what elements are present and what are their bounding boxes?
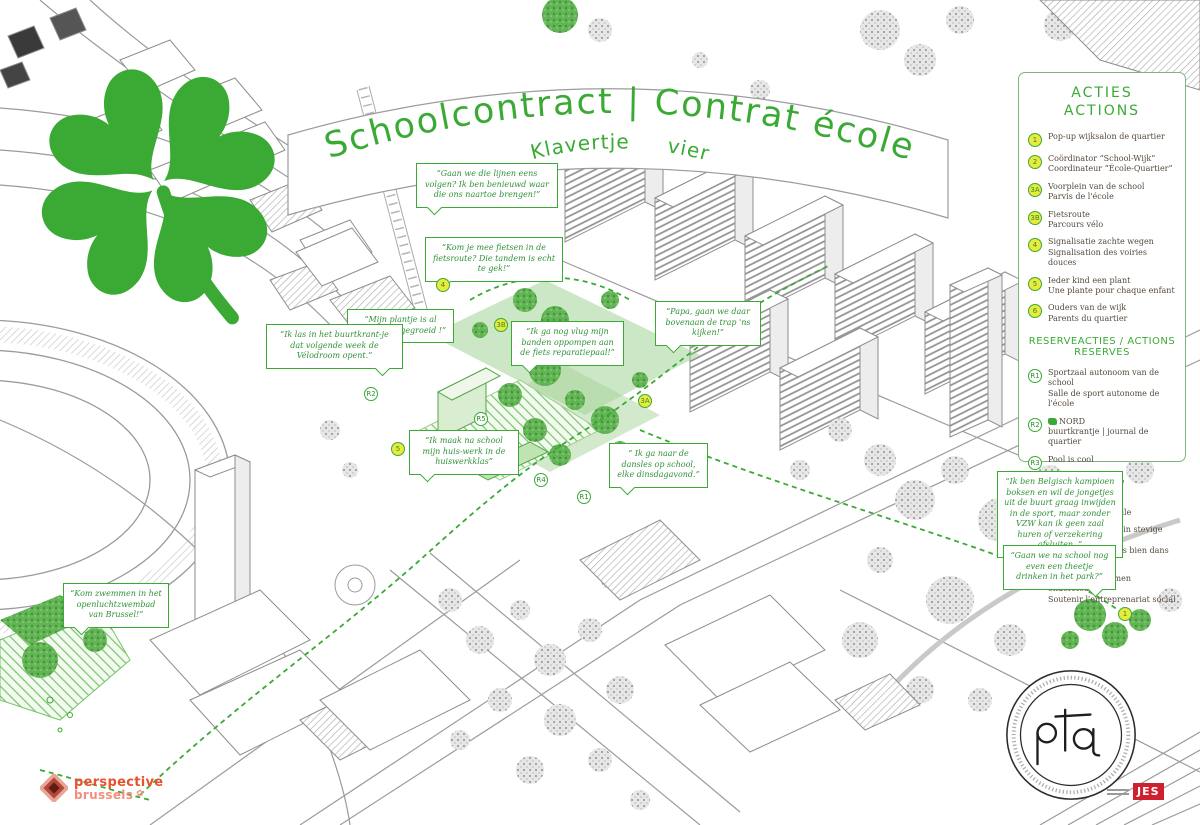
- four-leaf-clover-logo: [6, 32, 320, 350]
- map-badge-3b: 3B: [494, 318, 508, 332]
- legend-reservations-title: RESERVEACTIES / ACTIONS RESERVES: [1028, 336, 1176, 358]
- action-badge: 3A: [1028, 183, 1042, 197]
- speech-bubble-trap: “Papa, gaan we daar bovenaan de trap 'ns…: [655, 301, 761, 346]
- perspective-diamond-icon: [40, 774, 68, 802]
- action-badge: 2: [1028, 155, 1042, 169]
- reservation-badge: R1: [1028, 369, 1042, 383]
- jes-wordmark: JES: [1133, 783, 1164, 800]
- action-badge: 4: [1028, 238, 1042, 252]
- map-badge-r5: R5: [474, 412, 488, 426]
- tall-tower: [950, 268, 1002, 437]
- action-badge: 3B: [1028, 211, 1042, 225]
- action-badge: 5: [1028, 277, 1042, 291]
- jes-logo: JES: [1107, 783, 1164, 800]
- map-badge-r1: R1: [577, 490, 591, 504]
- schoolcontract-poster: Schoolcontract | Contrat école Klavertje…: [0, 0, 1200, 825]
- legend-action-6: 6 Ouders van de wijkParents du quartier: [1028, 303, 1176, 324]
- roundabout: [335, 565, 375, 605]
- action-badge: 1: [1028, 133, 1042, 147]
- map-badge-1: 1: [1118, 607, 1132, 621]
- map-badge-r2: R2: [364, 387, 378, 401]
- legend-action-2: 2 Coördinator “School-Wijk”Coordinateur …: [1028, 154, 1176, 175]
- nord-logo-icon: [1048, 418, 1057, 425]
- speech-bubble-theetje: “Gaan we na school nog even een theetje …: [1003, 545, 1116, 590]
- blocks-bottom: [150, 455, 920, 760]
- speech-bubble-huiswerk: “Ik maak na school mijn huis-werk in de …: [409, 430, 519, 475]
- iris-icon: ✿: [136, 790, 144, 799]
- reservation-badge: R2: [1028, 418, 1042, 432]
- legend-action-1: 1 Pop-up wijksalon de quartier: [1028, 132, 1176, 147]
- map-badge-5: 5: [391, 442, 405, 456]
- speech-bubble-banden: “Ik ga nog vlug mijn banden oppompen aan…: [511, 321, 624, 366]
- legend-title: ACTIES ACTIONS: [1028, 85, 1176, 120]
- map-badge-3a: 3A: [638, 394, 652, 408]
- reservation-badge: R3: [1028, 456, 1042, 470]
- legend-panel: ACTIES ACTIONS 1 Pop-up wijksalon de qua…: [1018, 72, 1186, 462]
- speech-bubble-velodroom: “Ik las in het buurtkrant-je dat volgend…: [266, 324, 403, 369]
- jes-smallprint: [1107, 789, 1129, 795]
- action-badge: 6: [1028, 304, 1042, 318]
- map-badge-r4: R4: [534, 473, 548, 487]
- legend-reservation-r3: R3 Pool is cool: [1028, 455, 1176, 470]
- brussels-wordmark: brussels: [74, 789, 133, 801]
- speech-bubble-lijnen: “Gaan we die lijnen eens volgen? Ik ben …: [416, 163, 558, 208]
- speech-bubble-fietsen: “Kom je mee fietsen in de fietsroute? Di…: [425, 237, 563, 282]
- perspective-wordmark: perspective: [74, 776, 163, 789]
- map-badge-4: 4: [436, 278, 450, 292]
- speech-bubble-zwemmen: “Kom zwemmen in het openluchtzwembad van…: [63, 583, 169, 628]
- speech-bubble-dansles: “ Ik ga naar de dansles op school, elke …: [609, 443, 708, 488]
- legend-action-5: 5 Ieder kind een plantUne plante pour ch…: [1028, 276, 1176, 297]
- legend-action-4: 4 Signalisatie zachte wegenSignalisation…: [1028, 237, 1176, 268]
- perspective-brussels-logo: perspective brussels✿: [40, 774, 163, 802]
- housing-towers: [565, 120, 1023, 450]
- legend-reservation-r1: R1 Sportzaal autonoom van de schoolSalle…: [1028, 368, 1176, 410]
- legend-action-3a: 3A Voorplein van de schoolParvis de l'éc…: [1028, 182, 1176, 203]
- legend-action-3b: 3B FietsrouteParcours vélo: [1028, 210, 1176, 231]
- legend-reservation-r2: R2 NORDbuurtkrantje | journal de quartie…: [1028, 417, 1176, 448]
